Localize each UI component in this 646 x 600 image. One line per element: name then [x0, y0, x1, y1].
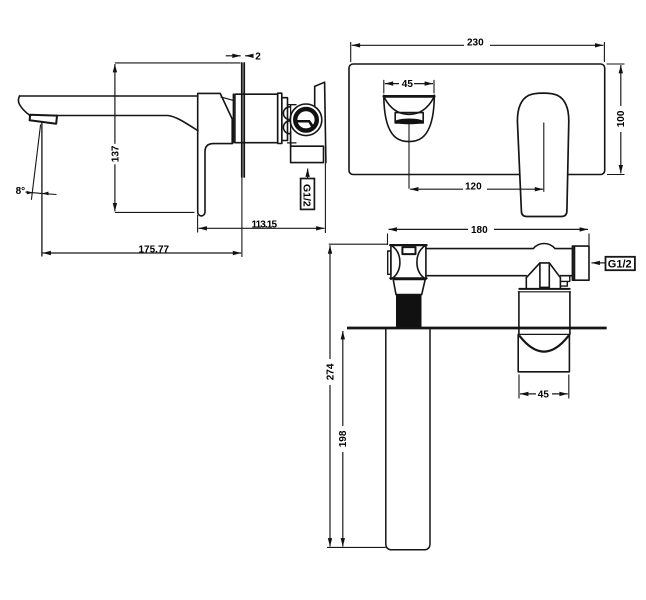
svg-text:G1/2: G1/2	[301, 184, 313, 207]
svg-text:45: 45	[538, 389, 550, 400]
svg-text:45: 45	[402, 79, 414, 90]
svg-text:8°: 8°	[16, 186, 26, 197]
svg-text:175.77: 175.77	[139, 244, 170, 255]
svg-text:230: 230	[467, 37, 484, 48]
svg-text:137: 137	[111, 145, 122, 162]
svg-text:G1/2: G1/2	[608, 258, 632, 270]
svg-text:113.15: 113.15	[252, 220, 278, 231]
svg-text:100: 100	[616, 110, 627, 127]
svg-text:274: 274	[325, 363, 336, 380]
svg-text:120: 120	[465, 182, 482, 193]
svg-text:198: 198	[338, 430, 349, 447]
svg-text:2: 2	[255, 52, 261, 63]
svg-text:180: 180	[471, 225, 488, 236]
